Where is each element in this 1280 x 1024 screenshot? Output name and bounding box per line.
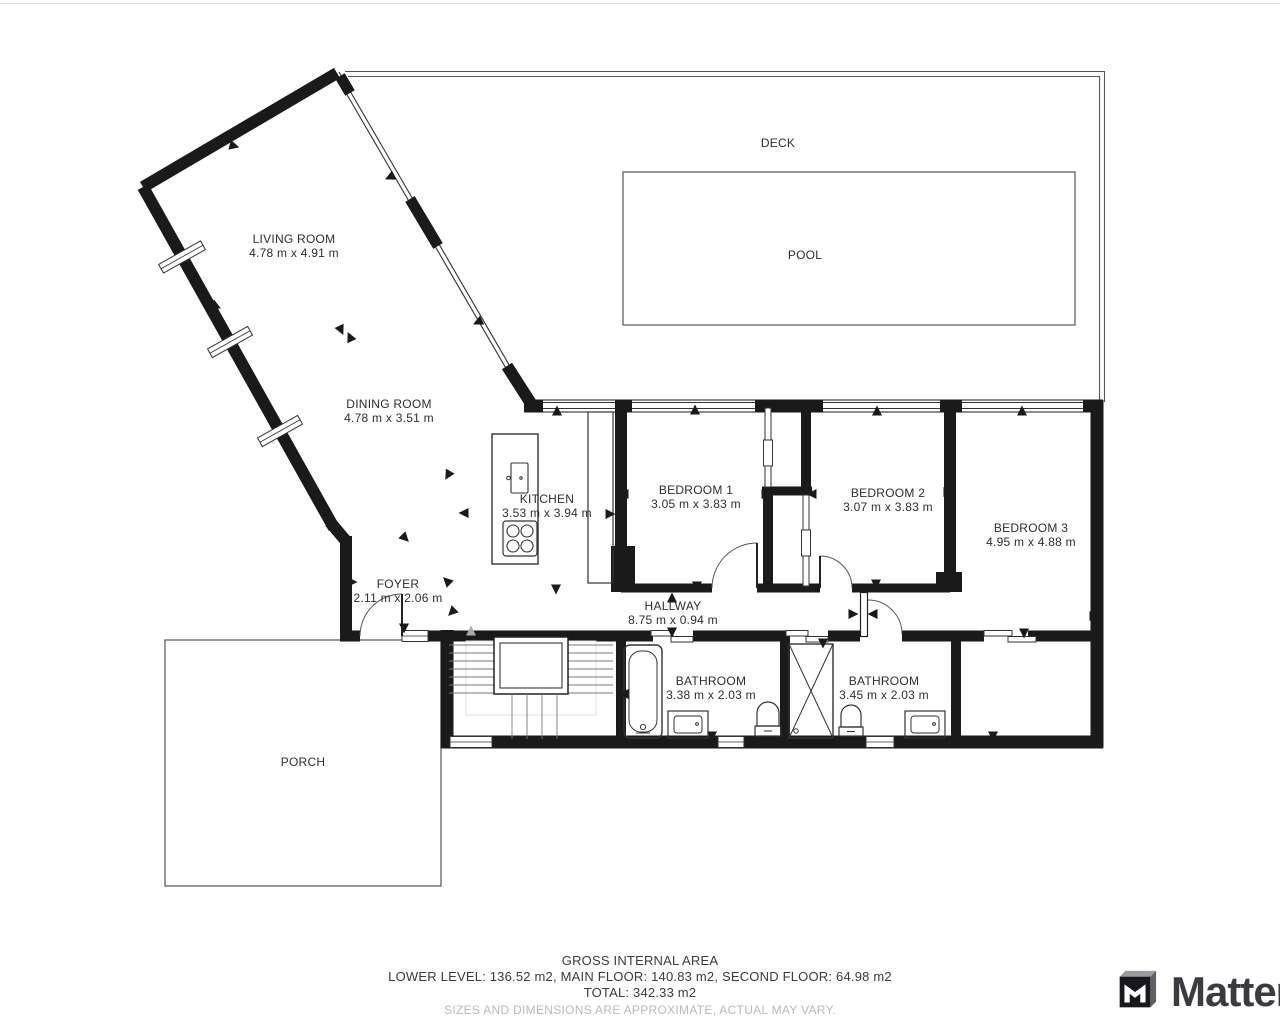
room-name: DECK (761, 136, 795, 150)
room-label-bedroom-3: BEDROOM 3 4.95 m x 4.88 m (986, 521, 1076, 549)
stove-cooktop-icon (503, 521, 537, 556)
room-label-hallway: HALLWAY 8.75 m x 0.94 m (628, 599, 718, 627)
room-name: KITCHEN (502, 492, 592, 506)
room-dims: 8.75 m x 0.94 m (628, 613, 718, 627)
matterport-logo-icon (1112, 969, 1158, 1015)
room-name: PORCH (281, 755, 326, 769)
bathtub-icon (624, 645, 662, 738)
room-dims: 3.05 m x 3.83 m (651, 497, 741, 511)
room-name: BATHROOM (839, 674, 929, 688)
room-name: HALLWAY (628, 599, 718, 613)
room-name: BATHROOM (666, 674, 756, 688)
hallway-door (861, 593, 903, 637)
room-name: BEDROOM 2 (843, 486, 933, 500)
room-label-foyer: FOYER 2.11 m x 2.06 m (354, 577, 443, 605)
vanity-sink-1-icon (668, 711, 708, 738)
direction-markers (210, 140, 1100, 741)
stair-landing (494, 637, 568, 694)
floor-plan-page: LIVING ROOM 4.78 m x 4.91 m DINING ROOM … (0, 0, 1280, 1024)
room-label-bathroom-1: BATHROOM 3.38 m x 2.03 m (666, 674, 756, 702)
floor-plan-drawing (0, 0, 1280, 1024)
stairs (449, 637, 613, 739)
room-name: BEDROOM 1 (651, 483, 741, 497)
room-dims: 2.11 m x 2.06 m (354, 591, 443, 605)
room-label-porch: PORCH (281, 755, 326, 769)
footer-total: TOTAL: 342.33 m2 (0, 985, 1280, 1001)
room-label-deck: DECK (761, 136, 795, 150)
kitchen-sink-icon (507, 463, 528, 493)
footer-disclaimer: SIZES AND DIMENSIONS ARE APPROXIMATE, AC… (0, 1002, 1280, 1018)
toilet-2-icon (839, 705, 863, 736)
room-label-bathroom-2: BATHROOM 3.45 m x 2.03 m (839, 674, 929, 702)
room-label-living-room: LIVING ROOM 4.78 m x 4.91 m (249, 232, 339, 260)
bedroom-1-door (712, 543, 757, 588)
matterport-logo: Matterport (1112, 969, 1280, 1015)
vanity-sink-2-icon (905, 711, 945, 738)
room-dims: 3.07 m x 3.83 m (843, 500, 933, 514)
room-label-dining-room: DINING ROOM 4.78 m x 3.51 m (344, 397, 434, 425)
deck-outline (345, 72, 1105, 403)
room-dims: 3.53 m x 3.94 m (502, 506, 592, 520)
room-dims: 3.38 m x 2.03 m (666, 688, 756, 702)
room-name: DINING ROOM (344, 397, 434, 411)
footer-title: GROSS INTERNAL AREA (0, 953, 1280, 969)
room-name: BEDROOM 3 (986, 521, 1076, 535)
footer-levels: LOWER LEVEL: 136.52 m2, MAIN FLOOR: 140.… (0, 969, 1280, 985)
room-dims: 4.78 m x 4.91 m (249, 246, 339, 260)
matterport-logo-text: Matterport (1171, 969, 1280, 1015)
room-name: FOYER (354, 577, 443, 591)
pool-outline (623, 172, 1075, 325)
room-dims: 3.45 m x 2.03 m (839, 688, 929, 702)
room-label-kitchen: KITCHEN 3.53 m x 3.94 m (502, 492, 592, 520)
shower-icon (789, 644, 833, 738)
room-name: POOL (788, 248, 822, 262)
room-name: LIVING ROOM (249, 232, 339, 246)
room-dims: 4.95 m x 4.88 m (986, 535, 1076, 549)
room-label-bedroom-2: BEDROOM 2 3.07 m x 3.83 m (843, 486, 933, 514)
bedroom-2-door (820, 556, 852, 588)
footer-area-summary: GROSS INTERNAL AREA LOWER LEVEL: 136.52 … (0, 953, 1280, 1018)
toilet-1-icon (755, 702, 781, 736)
room-label-pool: POOL (788, 248, 822, 262)
room-label-bedroom-1: BEDROOM 1 3.05 m x 3.83 m (651, 483, 741, 511)
room-dims: 4.78 m x 3.51 m (344, 411, 434, 425)
